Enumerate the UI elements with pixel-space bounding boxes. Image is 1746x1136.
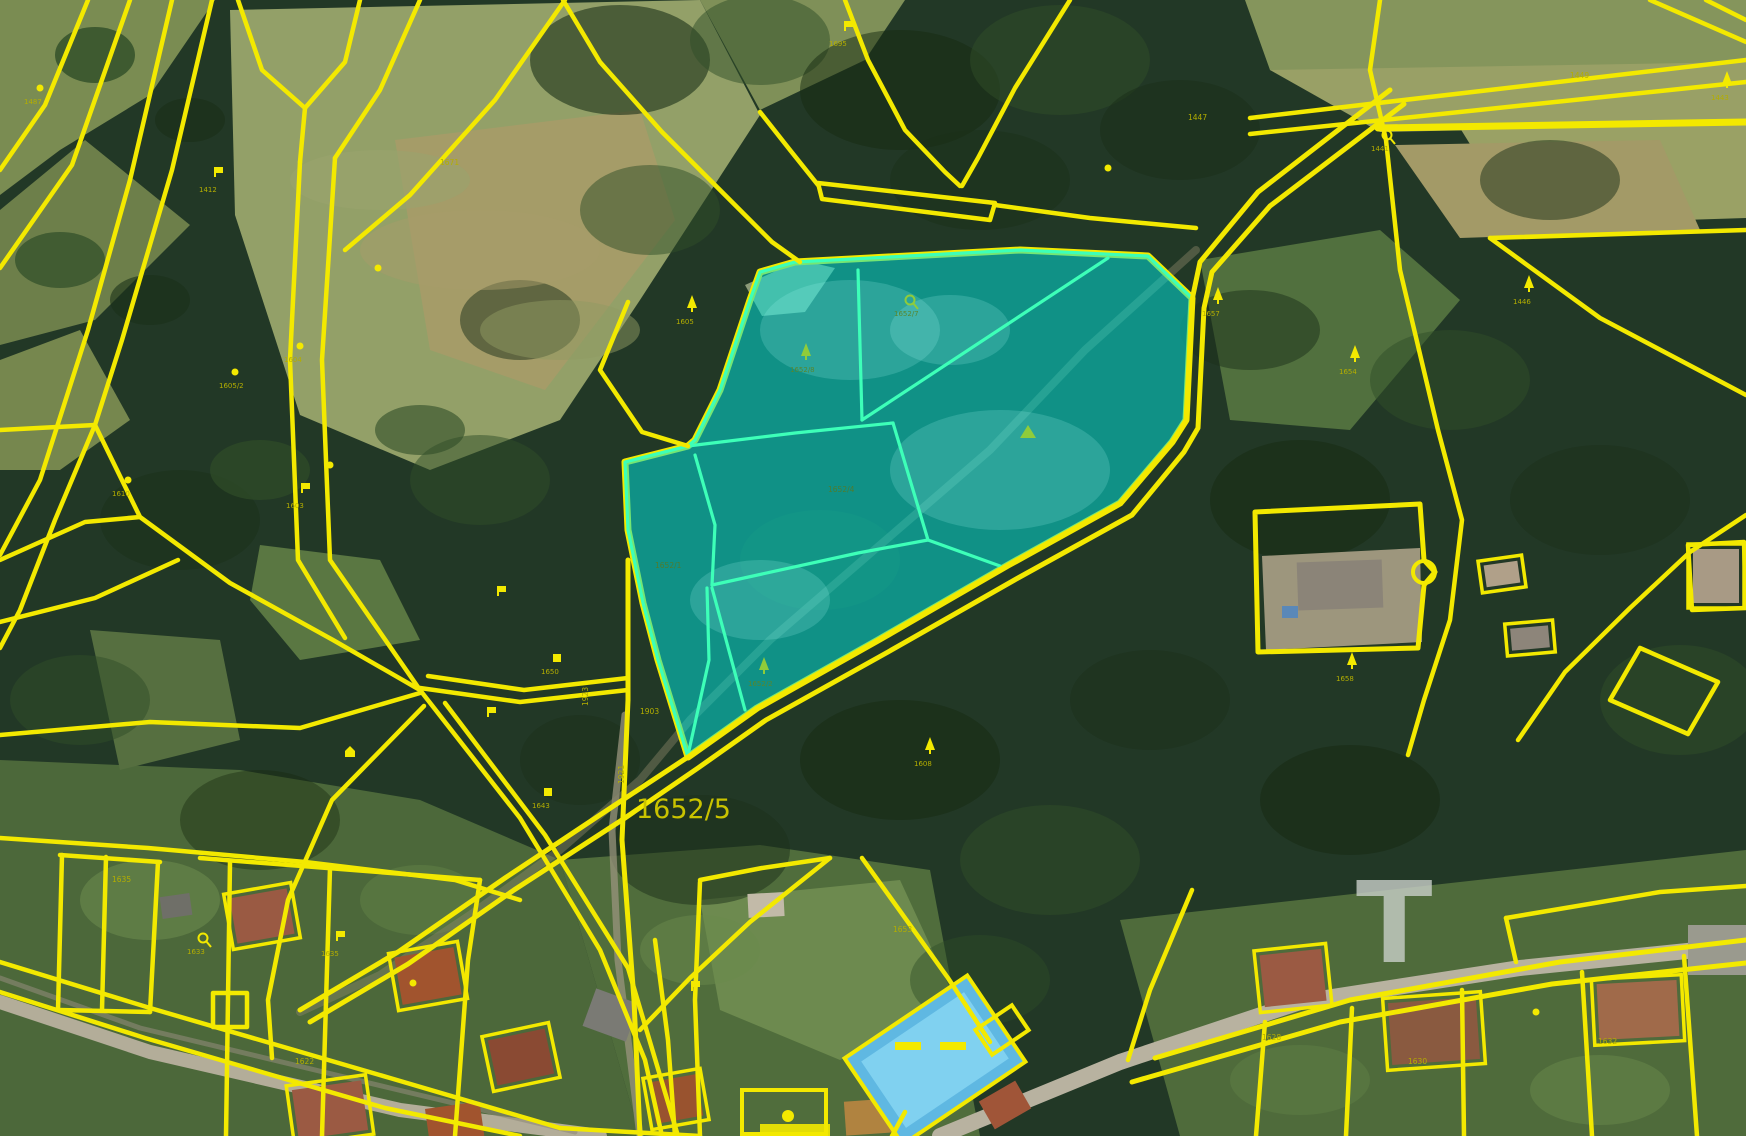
building-roof — [1484, 561, 1521, 588]
canopy-blob — [15, 232, 105, 288]
symbol-parcel-number: 1658 — [1336, 675, 1354, 683]
canopy-blob — [1260, 745, 1440, 855]
canopy-blob — [110, 275, 190, 325]
parcel-number-label: 1447 — [1188, 113, 1207, 122]
canopy-blob — [1070, 650, 1230, 750]
dot-icon — [410, 980, 417, 987]
building-roof — [1297, 560, 1384, 611]
symbol-parcel-number: 1635 — [321, 950, 339, 958]
symbol-parcel-number: 1605/2 — [219, 382, 244, 390]
canopy-blob — [375, 405, 465, 455]
symbol-parcel-number: 1695 — [829, 40, 847, 48]
pool-dash-mark — [895, 1042, 921, 1050]
cadastral-map-canvas[interactable]: T14871412169516041605/216031610160516571… — [0, 0, 1746, 1136]
symbol-parcel-number: 1633 — [187, 948, 205, 956]
dot-icon — [1105, 165, 1112, 172]
parcel-number-label: 1632 — [1598, 1037, 1617, 1046]
symbol-parcel-number: 1487 — [24, 98, 42, 106]
bottom-structure-band — [760, 1124, 830, 1136]
building-roof — [1282, 606, 1298, 618]
dot-icon — [782, 1110, 794, 1122]
parcel-number-label: 1630 — [1408, 1057, 1427, 1066]
canopy-blob — [1100, 80, 1260, 180]
symbol-parcel-number: 1605 — [676, 318, 694, 326]
symbol-parcel-number: 1652/8 — [790, 366, 815, 374]
symbol-parcel-number: 1412 — [199, 186, 217, 194]
watermark-t: T — [1356, 859, 1432, 989]
building-roof — [1259, 949, 1326, 1007]
symbol-parcel-number: 1608 — [914, 760, 932, 768]
canopy-blob — [1480, 140, 1620, 220]
symbol-parcel-number: 1652/7 — [894, 310, 919, 318]
pool-dash-mark — [940, 1042, 966, 1050]
symbol-parcel-number: 1654 — [1339, 368, 1357, 376]
highlight-texture — [690, 560, 830, 640]
parcel-number-label: 1635 — [112, 875, 131, 884]
parcel-number-label: 1921 — [617, 765, 626, 784]
canopy-blob — [580, 165, 720, 255]
building-roof — [292, 1080, 368, 1136]
building-roof — [1510, 625, 1550, 650]
canopy-blob — [155, 98, 225, 142]
parcel-number-label: 1622 — [295, 1057, 314, 1066]
highlight-texture — [890, 410, 1110, 530]
parcel-number-label: 1653 — [893, 925, 912, 934]
canopy-blob — [960, 805, 1140, 915]
symbol-parcel-number: 1443 — [1711, 94, 1729, 102]
canopy-blob — [1510, 445, 1690, 555]
canopy-blob — [360, 210, 600, 290]
dot-icon — [1533, 1009, 1540, 1016]
symbol-parcel-number: 1603 — [286, 502, 304, 510]
symbol-parcel-number: 1643 — [532, 802, 550, 810]
parcel-number-label: 1923 — [581, 687, 590, 706]
building-roof — [160, 893, 193, 919]
canopy-blob — [1210, 440, 1390, 560]
canopy-blob — [1530, 1055, 1670, 1125]
parcel-number-label: 1628 — [1262, 1033, 1281, 1042]
cadastral-map-viewport[interactable]: T14871412169516041605/216031610160516571… — [0, 0, 1746, 1136]
canopy-blob — [80, 860, 220, 940]
canopy-blob — [1370, 330, 1530, 430]
symbol-parcel-number: 1610 — [112, 490, 130, 498]
parcel-boundary-line — [58, 1010, 150, 1012]
parcel-number-label: 1449 — [1570, 71, 1589, 80]
parcel-boundary-line — [1462, 990, 1464, 1136]
canopy-blob — [800, 700, 1000, 820]
building-roof — [1597, 980, 1680, 1040]
building-roof — [394, 947, 461, 1005]
symbol-parcel-number: 1441 — [1371, 145, 1389, 153]
dot-icon — [327, 462, 334, 469]
parcel-number-label: 1903 — [640, 707, 659, 716]
parcel-number-label: 1652/1 — [655, 561, 682, 570]
dot-icon — [375, 265, 382, 272]
symbol-parcel-number: 1657 — [1202, 310, 1220, 318]
symbol-parcel-number: 1604 — [284, 356, 302, 364]
symbol-parcel-number: 1650 — [541, 668, 559, 676]
symbol-parcel-number: 1446 — [1513, 298, 1531, 306]
canopy-blob — [530, 5, 710, 115]
parcel-number-label: 1652/4 — [828, 485, 855, 494]
parcel-number-label: 1671 — [440, 158, 459, 167]
building-roof — [1693, 549, 1739, 603]
main-parcel-label: 1652/5 — [636, 794, 731, 825]
symbol-parcel-number: 1652/2 — [748, 680, 773, 688]
highlight-texture — [890, 295, 1010, 365]
